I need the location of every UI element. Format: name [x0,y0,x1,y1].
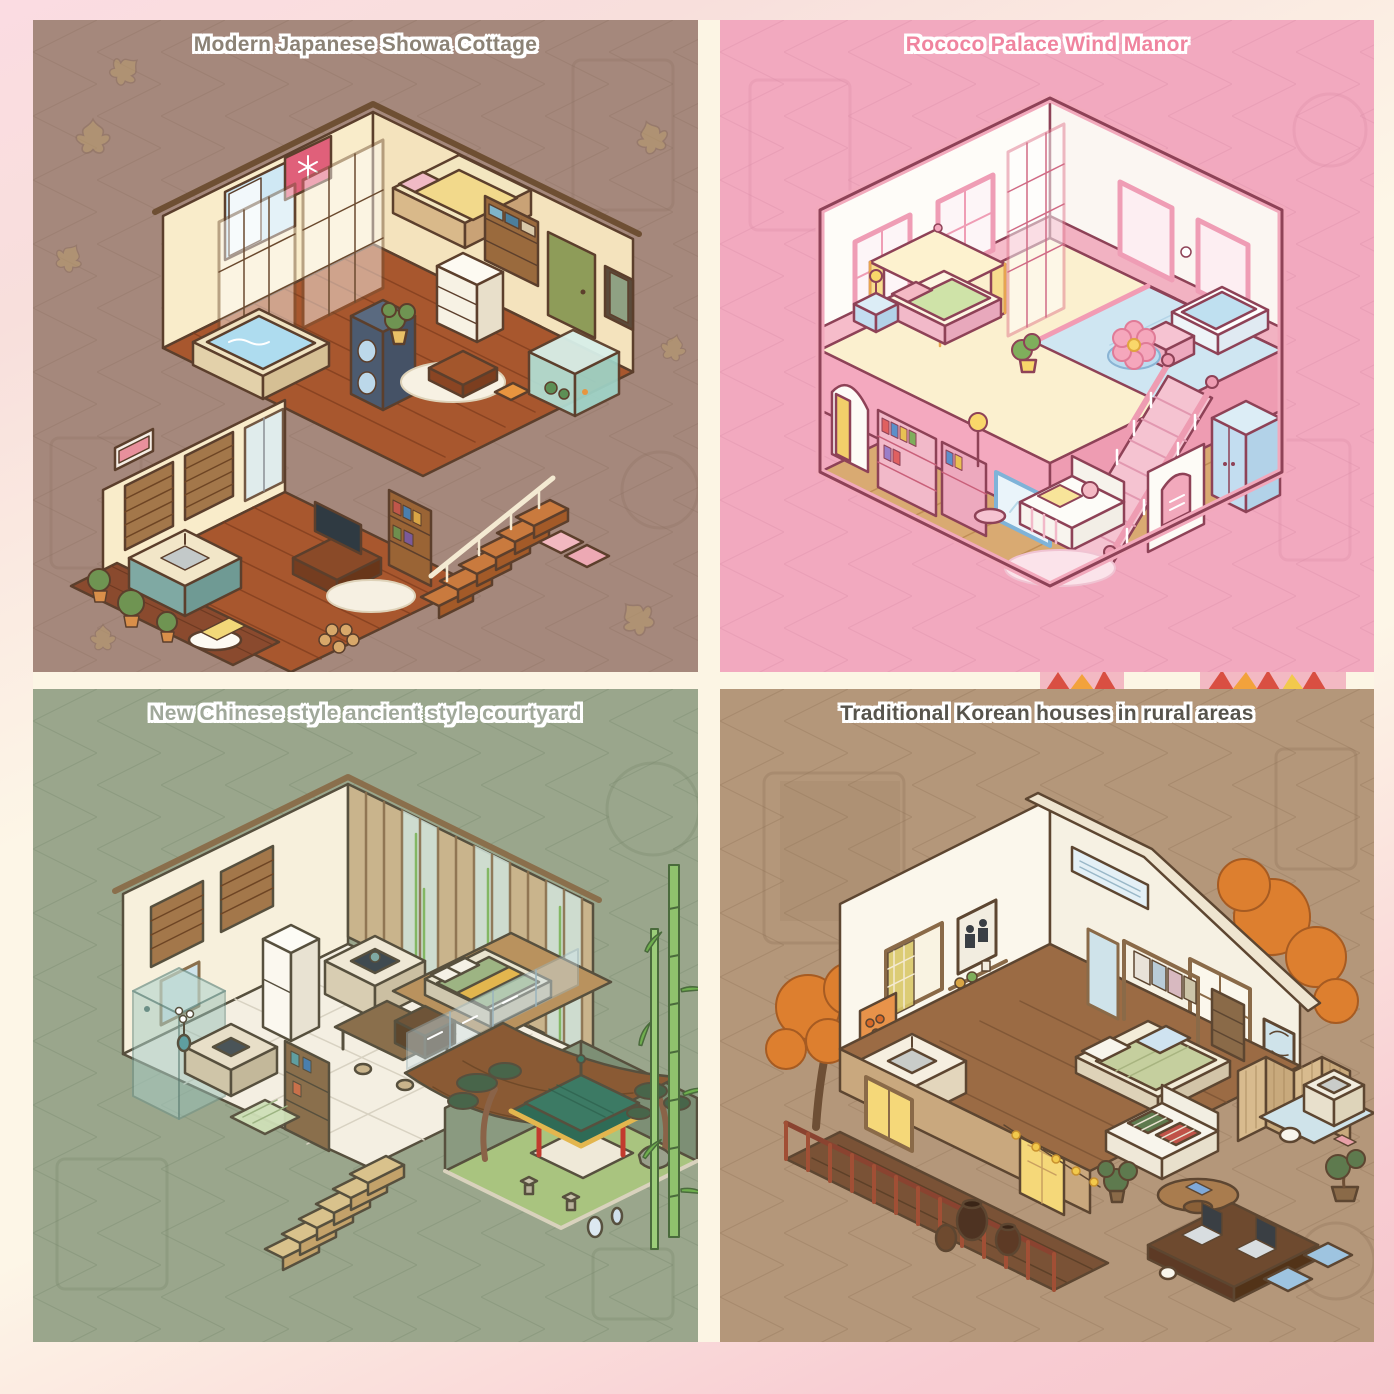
panel-new-chinese-ancient-courtyard: New Chinese style ancient style courtyar… [33,689,698,1342]
rococo-manor-illustration [720,20,1374,672]
gutter-ray-decor-small [1040,670,1124,690]
ray-decor-art [1200,670,1346,690]
japanese-cottage-illustration [33,20,698,672]
panel-title: Traditional Korean houses in rural areas [720,701,1374,727]
chinese-courtyard-illustration [33,689,698,1342]
panel-title: Modern Japanese Showa Cottage [33,32,698,58]
horizontal-gutter [33,672,1374,689]
collage-canvas: Modern Japanese Showa Cottage [0,0,1394,1394]
panel-title: Rococo Palace Wind Manor [720,32,1374,58]
ray-decor-art-small [1040,670,1124,690]
panel-modern-japanese-showa-cottage: Modern Japanese Showa Cottage [33,20,698,672]
korean-house-illustration [720,689,1374,1342]
gutter-ray-decor [1200,670,1346,690]
panel-title: New Chinese style ancient style courtyar… [33,701,698,727]
panel-traditional-korean-houses: Traditional Korean houses in rural areas [720,689,1374,1342]
panel-rococo-palace-wind-manor: Rococo Palace Wind Manor [720,20,1374,672]
